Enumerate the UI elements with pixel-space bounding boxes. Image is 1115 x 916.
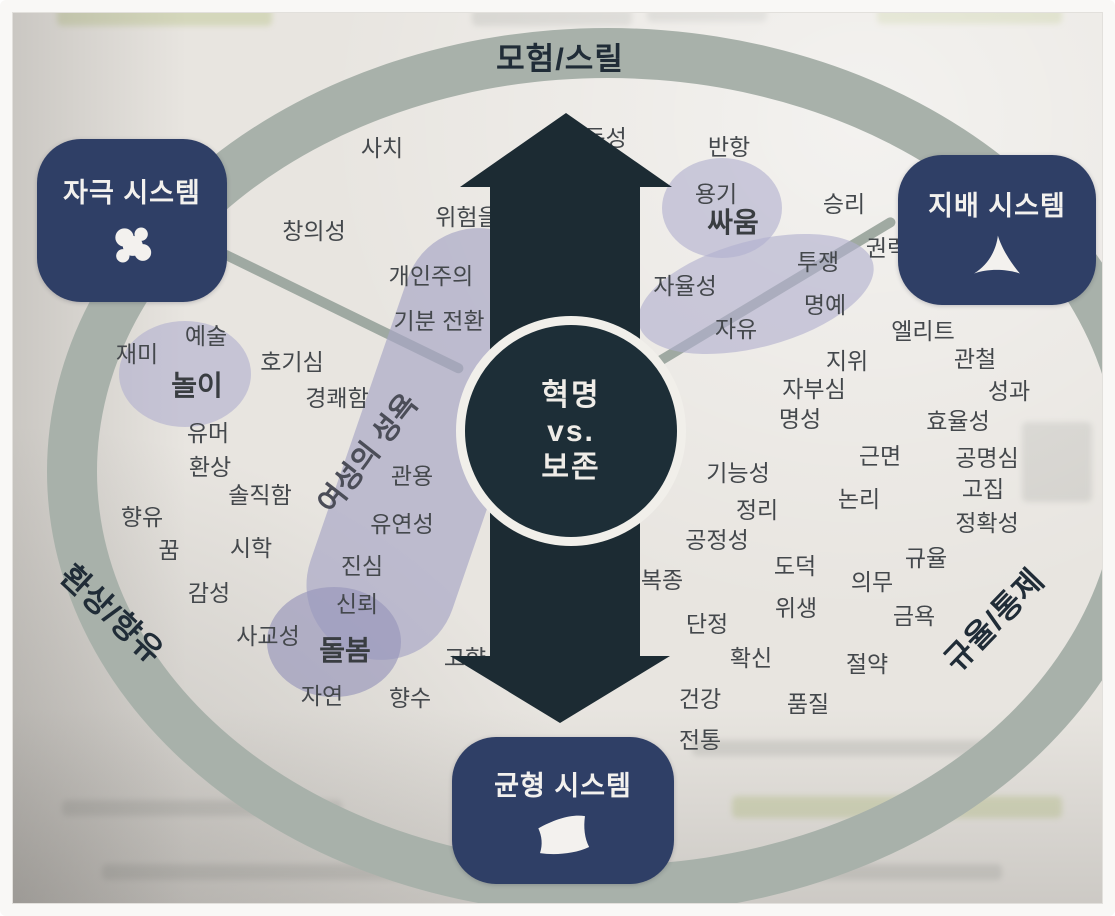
value-word: 승리 [823,185,865,219]
center-text-line: 혁명 [541,379,600,412]
value-word: 명예 [804,286,846,320]
value-word: 경쾌함 [305,379,368,413]
value-word: 단정 [686,605,728,639]
value-word: 의무 [851,563,893,597]
balance-system-box: 균형 시스템 [452,737,674,884]
value-word: 충동성 [563,119,626,153]
value-word: 품질 [787,685,829,719]
value-word: 꿈 [158,531,179,565]
value-word: 관철 [954,340,996,374]
value-word: 기분 전환 [393,302,484,336]
value-word: 금욕 [893,597,935,631]
cushion-icon [531,810,595,860]
value-word: 돌봄 [319,629,371,669]
center-text-line: vs. [547,415,595,448]
value-word: 공정성 [685,521,748,555]
page-bleed-artifact [877,4,1062,24]
value-word: 창의성 [282,212,345,246]
value-word: 자부심 [782,370,845,404]
value-word: 진심 [341,547,383,581]
value-word: 시학 [230,529,272,563]
dominance-system-box: 지배 시스템 [898,155,1096,305]
value-word: 정리 [736,491,778,525]
value-word: 정확성 [955,504,1018,538]
value-word: 사치 [361,129,403,163]
value-word: 예술 [185,317,227,351]
value-word: 유머 [187,414,229,448]
value-word: 향수 [389,679,431,713]
fin-icon [969,233,1025,277]
value-word: 성과 [988,372,1030,406]
value-word: 사교성 [236,617,299,651]
value-word: 위생 [775,589,817,623]
ring-label-adventure-thrill: 모험/스릴 [496,34,624,79]
value-word: 효율성 [926,402,989,436]
value-word: 복종 [641,561,683,595]
value-word: 도덕 [774,547,816,581]
balance-system-label: 균형 시스템 [494,764,632,803]
center-circle: 혁명 vs. 보존 [456,316,686,546]
value-word: 자연 [301,677,343,711]
value-word: 환상 [189,448,231,482]
value-word: 솔직함 [228,476,291,510]
value-word: 엘리트 [891,312,954,346]
stimulation-system-box: 자극 시스템 [37,139,227,302]
value-word: 고집 [962,470,1004,504]
value-word: 절약 [846,645,888,679]
page-bleed-artifact [472,8,632,26]
value-word: 놀이 [171,364,223,404]
page-bleed-artifact [57,6,272,26]
limbic-map-diagram: 모험/스릴 환상/향유 규율/통제 여성의 성욕 사치충동성반항위험을창의성용기… [12,12,1103,904]
value-word: 명성 [779,400,821,434]
value-word: 자율성 [653,267,716,301]
value-word: 건강 [679,680,721,714]
value-word: 관용 [391,457,433,491]
value-word: 공명심 [955,439,1018,473]
value-word: 호기심 [260,343,323,377]
value-word: 전통 [679,721,721,755]
value-word: 싸움 [707,201,759,241]
value-word: 재미 [116,335,158,369]
value-word: 고향 [444,639,486,673]
value-word: 기능성 [706,454,769,488]
value-word: 위험을 [435,198,498,232]
page-bleed-artifact [647,6,767,22]
center-text-line: 보존 [541,451,600,484]
value-word: 향유 [121,498,163,532]
value-word: 유연성 [370,505,433,539]
value-word: 개인주의 [389,257,474,291]
dominance-system-label: 지배 시스템 [928,184,1066,223]
value-word: 논리 [838,480,880,514]
value-word: 자유 [715,310,757,344]
value-word: 신뢰 [336,585,378,619]
splash-icon [105,220,159,270]
value-word: 규율 [905,539,947,573]
value-word: 반항 [708,128,750,162]
value-word: 근면 [859,437,901,471]
value-word: 확신 [730,639,772,673]
book-page-photo: 모험/스릴 환상/향유 규율/통제 여성의 성욕 사치충동성반항위험을창의성용기… [0,0,1115,916]
stimulation-system-label: 자극 시스템 [63,171,201,210]
value-word: 감성 [188,574,230,608]
value-word: 투쟁 [797,243,839,277]
